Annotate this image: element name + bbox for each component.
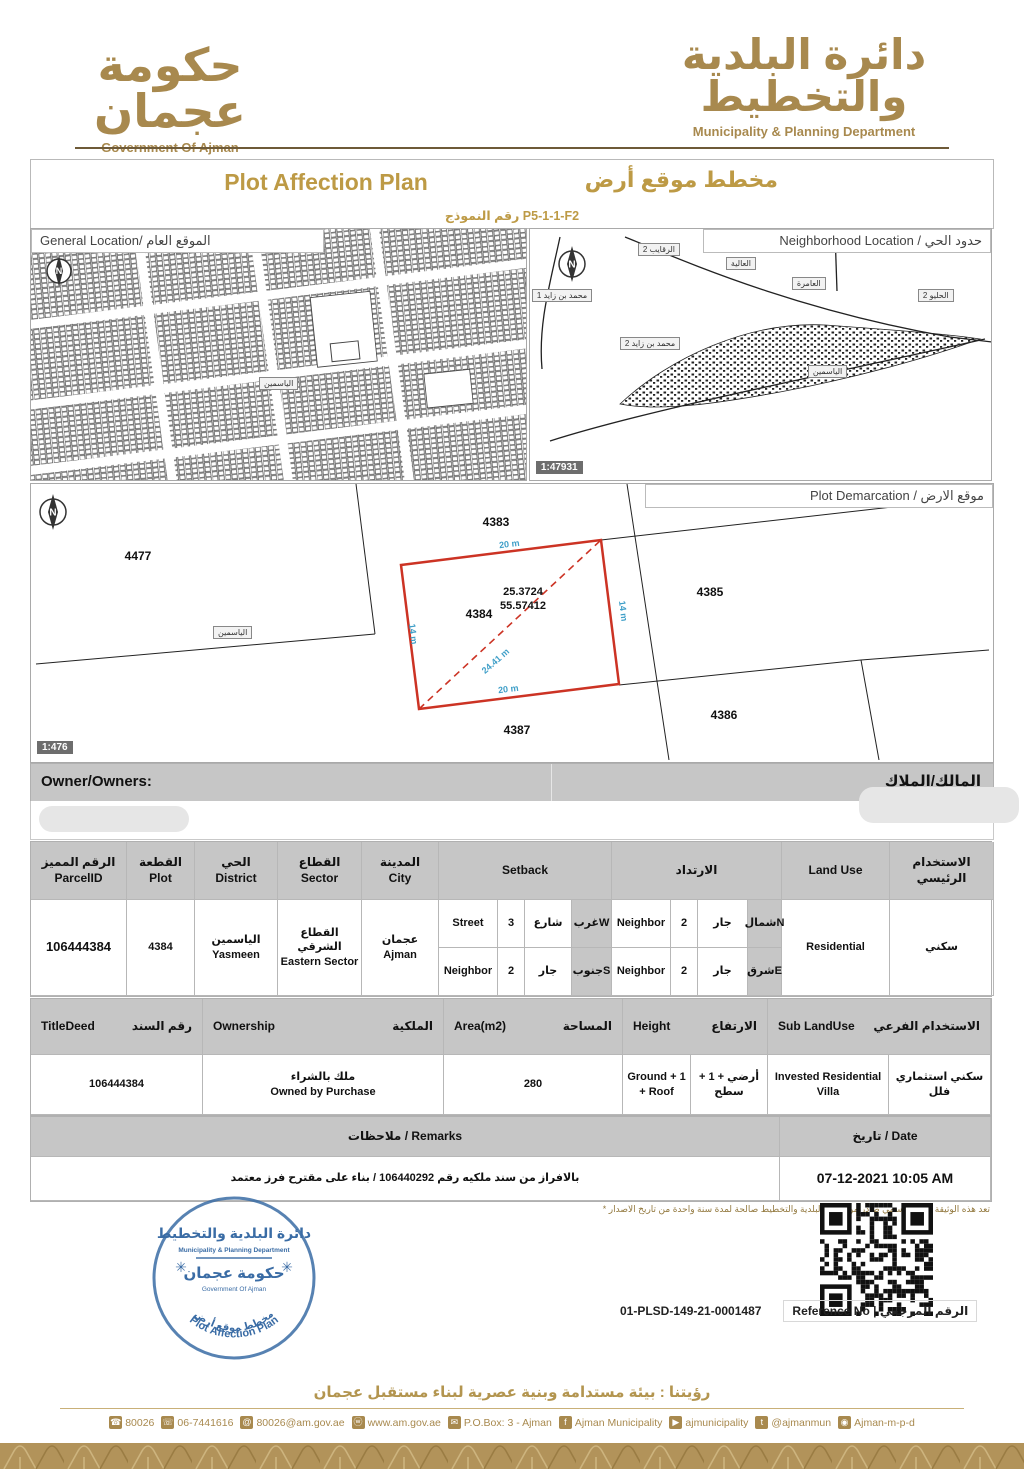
form-number: رقم النموذج P5-1-1-F2 <box>31 208 993 223</box>
stamp-rosette-icon: ✳ <box>281 1259 293 1275</box>
setback-type-ar: جار <box>698 900 748 948</box>
plot-coordinates: 25.3724 55.57412 <box>500 586 546 614</box>
municipality-caption: Municipality & Planning Department <box>639 124 969 139</box>
col-header-parcel-id: الرقم المميز ParcelID <box>31 842 127 900</box>
main-use-value-ar: سكني <box>890 900 994 996</box>
contact-label: ajmunicipality <box>685 1417 748 1429</box>
owner-header-divider <box>551 764 552 802</box>
city-value: عجمان Ajman <box>362 900 439 996</box>
setback-type: Street <box>439 900 498 948</box>
header-plot-ar: القطعة <box>139 855 182 871</box>
reference-row: 01-PLSD-149-21-0001487 Reference No | ال… <box>620 1300 992 1322</box>
district-label-chip: الياسمين <box>808 365 847 378</box>
area-label: العالية <box>726 257 756 270</box>
setback-type-ar: جار <box>525 948 572 996</box>
document-title-ar: مخطط موقع أرض <box>585 167 778 193</box>
col-header-setback-en: Setback <box>439 842 612 900</box>
header-ownership-ar: الملكية <box>392 1019 433 1035</box>
contact-twitter: t@ajmanmun <box>755 1416 831 1429</box>
header-title-deed-en: TitleDeed <box>41 1019 95 1035</box>
instagram-icon: ◉ <box>838 1416 851 1429</box>
setback-value: 2 <box>498 948 525 996</box>
area-label: العامرة <box>792 277 826 290</box>
email-icon: @ <box>240 1416 253 1429</box>
col-header-height: Height الارتفاع <box>623 999 768 1055</box>
stamp-gov-ar: حكومة عجمان <box>183 1265 284 1282</box>
sub-land-use-value-ar: سكني استثماري فلل <box>889 1055 991 1115</box>
stamp-dept-ar: دائرة البلدية والتخطيط <box>157 1225 311 1242</box>
neighborhood-drawing: N <box>530 229 992 480</box>
district-label-chip: الياسمين <box>259 377 298 390</box>
area-label: محمد بن زايد 2 <box>620 337 680 350</box>
title-bar: Plot Affection Plan مخطط موقع أرض <box>30 159 994 206</box>
reference-number: 01-PLSD-149-21-0001487 <box>620 1304 761 1318</box>
remark-value: بالافراز من سند ملكيه رقم 106440292 / بن… <box>31 1157 780 1201</box>
owner-section-header: Owner/Owners: المالك/الملاك <box>30 763 994 803</box>
setback-direction: شمالN <box>748 900 782 948</box>
contact-label: 80026@am.gov.ae <box>256 1417 344 1429</box>
header-parcel-id-ar: الرقم المميز <box>42 855 116 871</box>
svg-text:N: N <box>568 260 575 271</box>
government-of-ajman-logo: حكومة عجمان Government Of Ajman <box>55 42 285 155</box>
col-header-ownership: Ownership الملكية <box>203 999 444 1055</box>
contact-facebook: fAjman Municipality <box>559 1416 663 1429</box>
contact-email: @80026@am.gov.ae <box>240 1416 344 1429</box>
height-value-ar: أرضي + 1 + سطح <box>691 1055 768 1115</box>
header-sector-en: Sector <box>301 871 338 887</box>
adjacent-plot-number: 4385 <box>697 585 724 599</box>
reference-label: Reference No | الرقم المرجعي <box>783 1300 977 1322</box>
district-value: الياسمين Yasmeen <box>195 900 278 996</box>
col-header-title-deed: TitleDeed رقم السند <box>31 999 203 1055</box>
area-label: الرقايب 2 <box>638 243 680 256</box>
header-height-ar: الارتفاع <box>711 1019 757 1035</box>
contact-label: P.O.Box: 3 - Ajman <box>464 1417 552 1429</box>
date-header: تاريخ / Date <box>780 1117 991 1157</box>
facebook-icon: f <box>559 1416 572 1429</box>
north-arrow-icon: N <box>40 494 66 530</box>
contact-fax: ☏06-7441616 <box>161 1416 233 1429</box>
map-scale: 1:47931 <box>536 461 583 474</box>
contact-pobox: ✉P.O.Box: 3 - Ajman <box>448 1416 552 1429</box>
header-title-deed-ar: رقم السند <box>132 1019 192 1035</box>
setback-value: 3 <box>498 900 525 948</box>
sector-value: القطاع الشرقي Eastern Sector <box>278 900 362 996</box>
title-deed-value: 106444384 <box>31 1055 203 1115</box>
vision-statement: رؤيتنا : بيئة مستدامة وبنية عصرية لبناء … <box>0 1383 1024 1401</box>
owner-names-row <box>30 801 994 840</box>
header-city-en: City <box>389 871 412 887</box>
plot-demarcation-title: Plot Demarcation / موقع الارض <box>645 484 993 508</box>
contact-website: ⓦwww.am.gov.ae <box>352 1416 441 1429</box>
header-sub-land-use-en: Sub LandUse <box>778 1019 855 1035</box>
col-header-land-use: Land Use <box>782 842 890 900</box>
neighborhood-location-map: N Neighborhood Location / حدود الحي الرق… <box>529 228 992 481</box>
location-maps-row: N General Location/ الموقع العام الياسمي… <box>30 228 992 481</box>
header-district-en: District <box>215 871 256 887</box>
header-parcel-id-en: ParcelID <box>54 871 102 887</box>
decorative-arabesque-band <box>0 1443 1024 1469</box>
latitude-value: 25.3724 <box>500 586 546 600</box>
subject-plot-number: 4384 <box>466 607 493 621</box>
date-value: 07-12-2021 10:05 AM <box>780 1157 991 1201</box>
col-header-main-use-ar: الاستخدام الرئيسي <box>890 842 994 900</box>
form-number-bar: رقم النموذج P5-1-1-F2 <box>30 204 994 229</box>
header-city-ar: المدينة <box>380 855 420 871</box>
document-header: حكومة عجمان Government Of Ajman دائرة ال… <box>45 34 979 138</box>
header-ownership-en: Ownership <box>213 1019 275 1035</box>
redacted-owner-name <box>859 787 1019 823</box>
header-area-ar: المساحة <box>563 1019 612 1035</box>
general-location-drawing: N <box>31 229 527 480</box>
footnote-bullet: * <box>603 1204 607 1214</box>
setback-type: Neighbor <box>612 900 671 948</box>
parcel-info-table: الرقم المميز ParcelID القطعة Plot الحي D… <box>30 841 992 997</box>
pobox-icon: ✉ <box>448 1416 461 1429</box>
area-label: الحليو 2 <box>918 289 954 302</box>
svg-text:N: N <box>49 508 56 519</box>
contact-phone: ☎80026 <box>109 1416 154 1429</box>
contact-youtube: ▶ajmunicipality <box>669 1416 748 1429</box>
ownership-value-ar: ملك بالشراء <box>291 1070 355 1084</box>
map-scale: 1:476 <box>37 741 73 754</box>
general-location-map: N General Location/ الموقع العام الياسمي… <box>30 228 527 481</box>
plot-demarcation-drawing: N <box>31 484 991 760</box>
stamp-dept-en: Municipality & Planning Department <box>178 1247 290 1254</box>
height-value-en: Ground + 1 + Roof <box>623 1055 691 1115</box>
general-location-title: General Location/ الموقع العام <box>31 229 324 253</box>
sector-value-en: Eastern Sector <box>281 955 359 969</box>
longitude-value: 55.57412 <box>500 600 546 614</box>
header-area-en: Area(m2) <box>454 1019 506 1035</box>
contact-label: Ajman-m-p-d <box>854 1417 915 1429</box>
official-stamp: دائرة البلدية والتخطيط Municipality & Pl… <box>148 1192 320 1364</box>
col-header-setback-ar: الارتداد <box>612 842 782 900</box>
area-label: محمد بن زايد 1 <box>532 289 592 302</box>
twitter-icon: t <box>755 1416 768 1429</box>
municipality-calligraphy: دائرة البلدية والتخطيط <box>639 34 969 118</box>
col-header-sector: القطاع Sector <box>278 842 362 900</box>
owner-label-en: Owner/Owners: <box>41 773 152 790</box>
plot-affection-plan-document: حكومة عجمان Government Of Ajman دائرة ال… <box>0 0 1024 1469</box>
contact-info-row: ☎80026 ☏06-7441616 @80026@am.gov.ae ⓦwww… <box>0 1416 1024 1429</box>
adjacent-plot-number: 4386 <box>711 708 738 722</box>
contact-label: 80026 <box>125 1417 154 1429</box>
header-height-en: Height <box>633 1019 670 1035</box>
adjacent-plot-number: 4477 <box>125 549 152 563</box>
stamp-gov-en: Government Of Ajman <box>202 1286 267 1293</box>
setback-type: Neighbor <box>612 948 671 996</box>
setback-direction: جنوبS <box>572 948 612 996</box>
plot-value: 4384 <box>127 900 195 996</box>
district-value-en: Yasmeen <box>212 948 260 962</box>
ownership-value-en: Owned by Purchase <box>270 1085 375 1099</box>
contact-label: @ajmanmun <box>771 1417 831 1429</box>
neighborhood-location-title: Neighborhood Location / حدود الحي <box>703 229 991 253</box>
north-arrow-icon: N <box>559 246 585 282</box>
contact-instagram: ◉Ajman-m-p-d <box>838 1416 915 1429</box>
land-use-value: Residential <box>782 900 890 996</box>
col-header-area: Area(m2) المساحة <box>444 999 623 1055</box>
header-district-ar: الحي <box>221 855 250 871</box>
area-value: 280 <box>444 1055 623 1115</box>
col-header-district: الحي District <box>195 842 278 900</box>
youtube-icon: ▶ <box>669 1416 682 1429</box>
setback-value: 2 <box>671 948 698 996</box>
district-value-ar: الياسمين <box>211 933 260 947</box>
contact-label: 06-7441616 <box>177 1417 233 1429</box>
website-icon: ⓦ <box>352 1416 365 1429</box>
footer-divider <box>60 1408 964 1409</box>
setback-direction: غربW <box>572 900 612 948</box>
deed-info-table: TitleDeed رقم السند Ownership الملكية Ar… <box>30 998 992 1116</box>
sector-value-ar: القطاع الشرقي <box>278 926 361 955</box>
setback-type: Neighbor <box>439 948 498 996</box>
ajman-government-calligraphy: حكومة عجمان <box>55 42 285 134</box>
col-header-sub-land-use: Sub LandUse الاستخدام الفرعي <box>768 999 991 1055</box>
district-label-chip: الياسمين <box>213 626 252 639</box>
parcel-id-value: 106444384 <box>31 900 127 996</box>
sub-land-use-value-en: Invested Residential Villa <box>768 1055 889 1115</box>
col-header-city: المدينة City <box>362 842 439 900</box>
svg-text:N: N <box>56 266 63 276</box>
adjacent-plot-number: 4387 <box>504 723 531 737</box>
header-sector-ar: القطاع <box>299 855 341 871</box>
setback-value: 2 <box>671 900 698 948</box>
phone-icon: ☎ <box>109 1416 122 1429</box>
remarks-table: ملاحظات / Remarks تاريخ / Date بالافراز … <box>30 1116 992 1202</box>
remarks-header: ملاحظات / Remarks <box>31 1117 780 1157</box>
setback-type-ar: شارع <box>525 900 572 948</box>
city-value-ar: عجمان <box>382 933 418 947</box>
header-plot-en: Plot <box>149 871 172 887</box>
setback-type-ar: جار <box>698 948 748 996</box>
stamp-rosette-icon: ✳ <box>175 1259 187 1275</box>
adjacent-plot-number: 4383 <box>483 515 510 529</box>
redacted-owner-name <box>39 806 189 832</box>
contact-label: Ajman Municipality <box>575 1417 663 1429</box>
header-divider <box>75 147 949 149</box>
city-value-en: Ajman <box>383 948 417 962</box>
stamp-drawing: دائرة البلدية والتخطيط Municipality & Pl… <box>148 1192 320 1364</box>
contact-label: www.am.gov.ae <box>368 1417 441 1429</box>
fax-icon: ☏ <box>161 1416 174 1429</box>
document-title-en: Plot Affection Plan <box>176 169 476 196</box>
col-header-plot: القطعة Plot <box>127 842 195 900</box>
header-sub-land-use-ar: الاستخدام الفرعي <box>873 1019 980 1035</box>
municipality-planning-logo: دائرة البلدية والتخطيط Municipality & Pl… <box>639 34 969 139</box>
ownership-value: ملك بالشراء Owned by Purchase <box>203 1055 444 1115</box>
setback-direction: شرقE <box>748 948 782 996</box>
plot-demarcation-panel: N Plot Demarcation / موقع الارض 4477 438… <box>30 483 994 763</box>
